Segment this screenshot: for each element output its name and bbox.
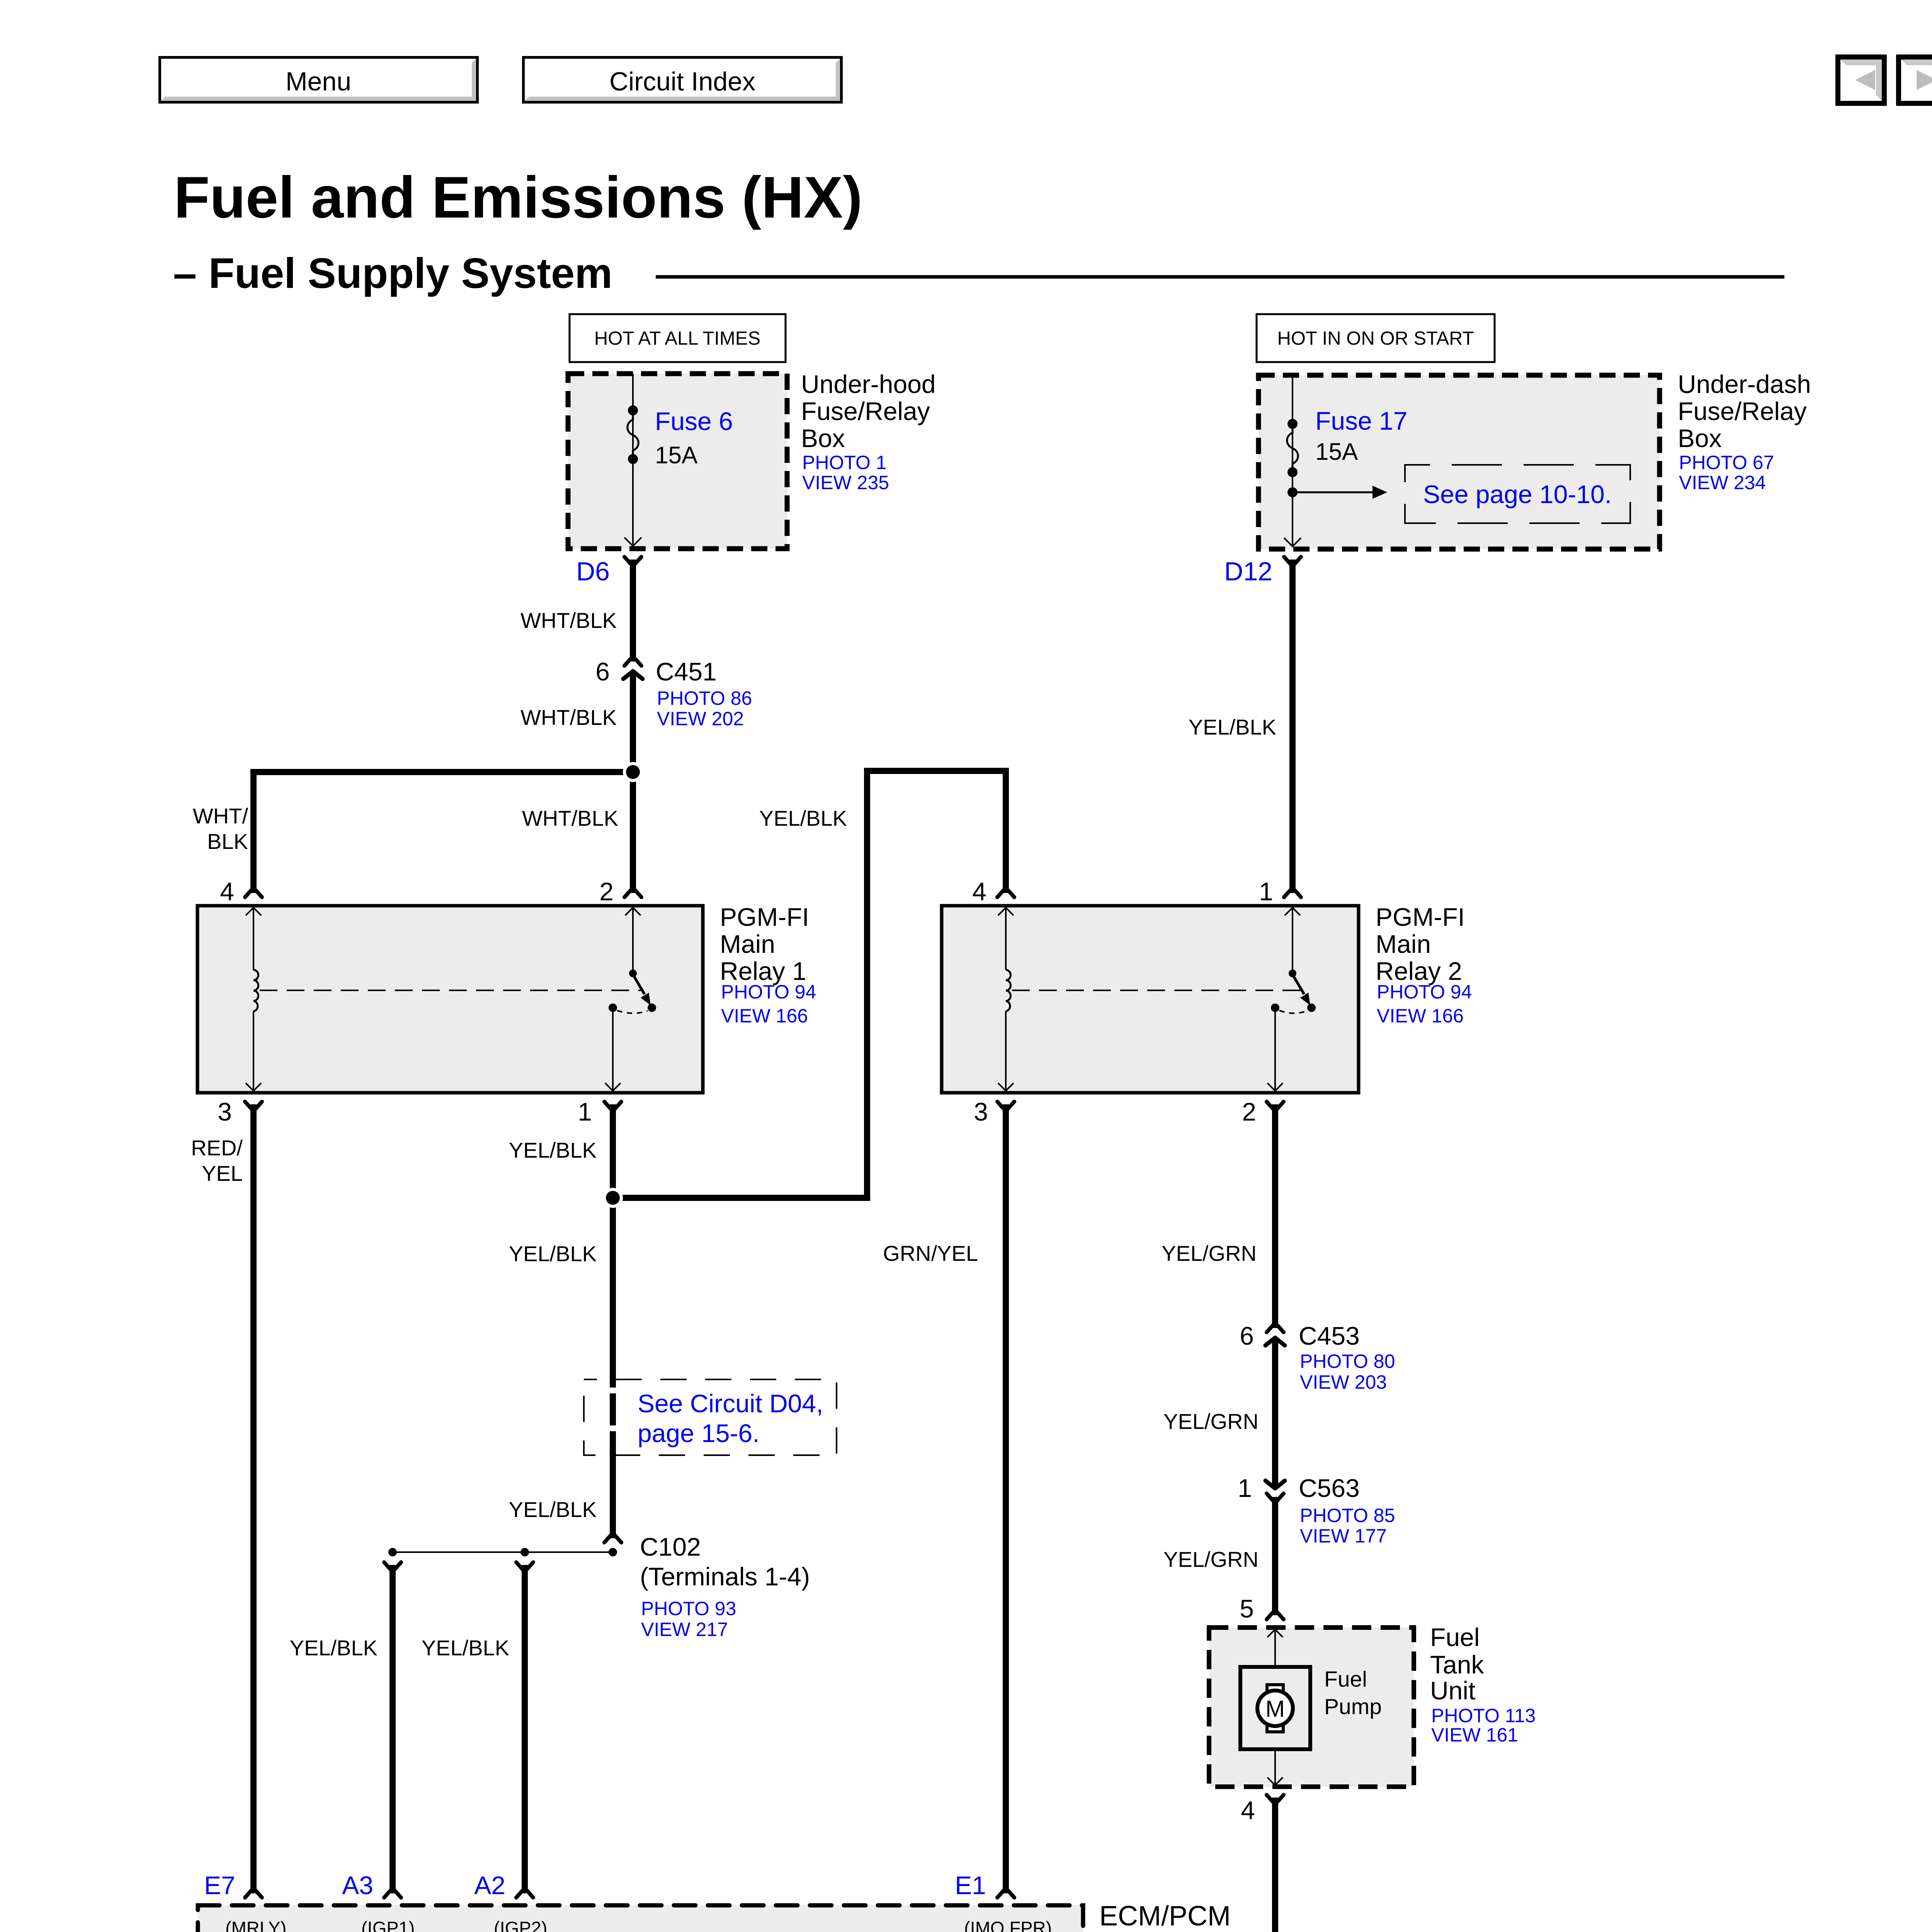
svg-text:Fuse/Relay: Fuse/Relay	[1678, 397, 1807, 425]
svg-text:3: 3	[974, 1097, 988, 1126]
svg-text:4: 4	[972, 877, 986, 906]
svg-text:HOT IN ON OR START: HOT IN ON OR START	[1277, 328, 1474, 349]
svg-text:See page 10-10.: See page 10-10.	[1423, 480, 1612, 509]
svg-text:Box: Box	[801, 424, 845, 452]
svg-text:RED/: RED/	[191, 1136, 243, 1160]
svg-text:2: 2	[599, 877, 614, 906]
svg-text:Fuse 6: Fuse 6	[655, 407, 733, 435]
svg-text:page 15-6.: page 15-6.	[638, 1419, 760, 1447]
svg-text:Box: Box	[1678, 424, 1722, 452]
svg-text:M: M	[1265, 1696, 1285, 1722]
svg-text:(Terminals 1-4): (Terminals 1-4)	[640, 1562, 810, 1591]
svg-text:PHOTO 94: PHOTO 94	[1377, 981, 1472, 1003]
svg-text:BLK: BLK	[207, 829, 248, 854]
svg-text:E7: E7	[204, 1871, 235, 1900]
svg-text:15A: 15A	[1315, 439, 1358, 465]
svg-text:C563: C563	[1299, 1474, 1360, 1502]
svg-text:WHT/BLK: WHT/BLK	[520, 608, 617, 633]
svg-text:1: 1	[1238, 1474, 1252, 1502]
svg-text:PHOTO 67: PHOTO 67	[1679, 452, 1774, 473]
svg-text:YEL/BLK: YEL/BLK	[422, 1636, 509, 1660]
svg-text:D12: D12	[1224, 557, 1272, 586]
svg-text:PGM-FI: PGM-FI	[720, 903, 809, 931]
svg-text:15A: 15A	[655, 442, 698, 469]
svg-text:HOT AT ALL TIMES: HOT AT ALL TIMES	[594, 328, 760, 349]
svg-text:A3: A3	[342, 1871, 373, 1900]
svg-text:D6: D6	[576, 557, 610, 586]
svg-text:4: 4	[220, 877, 234, 906]
svg-text:PHOTO 85: PHOTO 85	[1300, 1505, 1395, 1526]
svg-text:Under-dash: Under-dash	[1678, 370, 1811, 398]
svg-text:Under-hood: Under-hood	[801, 370, 936, 398]
svg-text:Menu: Menu	[286, 67, 351, 96]
svg-text:YEL/BLK: YEL/BLK	[509, 1497, 597, 1522]
svg-text:(IMO FPR): (IMO FPR)	[964, 1918, 1052, 1932]
svg-text:VIEW 235: VIEW 235	[802, 472, 889, 493]
svg-text:GRN/YEL: GRN/YEL	[883, 1241, 978, 1265]
svg-text:Main: Main	[1376, 930, 1431, 958]
svg-text:Pump: Pump	[1324, 1694, 1382, 1719]
svg-text:YEL/BLK: YEL/BLK	[1189, 715, 1276, 739]
svg-text:VIEW 203: VIEW 203	[1300, 1371, 1387, 1393]
svg-text:PHOTO 92: PHOTO 92	[1100, 1930, 1196, 1932]
svg-text:Fuse/Relay: Fuse/Relay	[801, 397, 930, 425]
svg-text:YEL/BLK: YEL/BLK	[509, 1138, 597, 1162]
svg-text:PHOTO 86: PHOTO 86	[657, 687, 752, 709]
svg-text:Fuel and Emissions (HX): Fuel and Emissions (HX)	[174, 165, 862, 230]
svg-text:VIEW 177: VIEW 177	[1300, 1525, 1387, 1547]
svg-text:6: 6	[595, 657, 610, 686]
svg-text:6: 6	[1240, 1321, 1254, 1350]
svg-text:PHOTO 80: PHOTO 80	[1300, 1350, 1395, 1372]
svg-text:PHOTO 93: PHOTO 93	[641, 1598, 736, 1619]
svg-text:VIEW 217: VIEW 217	[641, 1619, 728, 1640]
svg-text:YEL: YEL	[202, 1161, 243, 1185]
svg-text:PHOTO 113: PHOTO 113	[1431, 1705, 1536, 1726]
svg-text:YEL/BLK: YEL/BLK	[509, 1242, 597, 1266]
svg-text:Fuel: Fuel	[1324, 1667, 1367, 1692]
svg-text:VIEW 166: VIEW 166	[721, 1005, 808, 1027]
svg-text:PGM-FI: PGM-FI	[1376, 903, 1465, 931]
svg-text:WHT/BLK: WHT/BLK	[520, 705, 617, 730]
svg-text:YEL/BLK: YEL/BLK	[759, 806, 847, 830]
svg-text:(MRLY): (MRLY)	[225, 1918, 286, 1932]
svg-text:See Circuit D04,: See Circuit D04,	[638, 1389, 823, 1418]
svg-text:PHOTO 1: PHOTO 1	[802, 452, 887, 473]
svg-text:C451: C451	[656, 657, 717, 686]
svg-text:1: 1	[578, 1097, 592, 1126]
svg-text:Fuse 17: Fuse 17	[1315, 406, 1407, 435]
svg-text:VIEW 161: VIEW 161	[1431, 1724, 1518, 1746]
svg-text:WHT/: WHT/	[193, 804, 248, 828]
svg-text:2: 2	[1242, 1097, 1256, 1126]
svg-text:YEL/GRN: YEL/GRN	[1163, 1409, 1259, 1434]
svg-text:C453: C453	[1299, 1321, 1360, 1350]
svg-text:Main: Main	[720, 930, 775, 958]
svg-text:Circuit Index: Circuit Index	[609, 67, 755, 96]
svg-text:YEL/GRN: YEL/GRN	[1162, 1241, 1257, 1265]
svg-text:(IGP1): (IGP1)	[361, 1918, 415, 1932]
svg-text:VIEW 166: VIEW 166	[1377, 1005, 1464, 1027]
svg-text:VIEW 202: VIEW 202	[657, 708, 744, 730]
svg-text:YEL/BLK: YEL/BLK	[290, 1636, 378, 1660]
svg-text:Fuel: Fuel	[1430, 1623, 1480, 1651]
svg-text:(IGP2): (IGP2)	[494, 1918, 547, 1932]
svg-text:C102: C102	[640, 1532, 701, 1561]
svg-text:VIEW 234: VIEW 234	[1679, 472, 1766, 493]
svg-text:ECM/PCM: ECM/PCM	[1099, 1901, 1231, 1932]
svg-text:3: 3	[218, 1097, 232, 1126]
svg-text:PHOTO 94: PHOTO 94	[721, 981, 816, 1003]
svg-text:1: 1	[1259, 877, 1273, 906]
svg-text:4: 4	[1241, 1796, 1255, 1825]
svg-text:WHT/BLK: WHT/BLK	[522, 806, 618, 830]
svg-text:YEL/GRN: YEL/GRN	[1163, 1547, 1259, 1571]
svg-text:Tank: Tank	[1430, 1650, 1484, 1679]
svg-text:Unit: Unit	[1430, 1676, 1475, 1705]
svg-text:– Fuel Supply System: – Fuel Supply System	[173, 250, 612, 297]
svg-text:5: 5	[1240, 1594, 1254, 1623]
svg-text:E1: E1	[955, 1871, 986, 1900]
svg-text:A2: A2	[474, 1871, 505, 1900]
